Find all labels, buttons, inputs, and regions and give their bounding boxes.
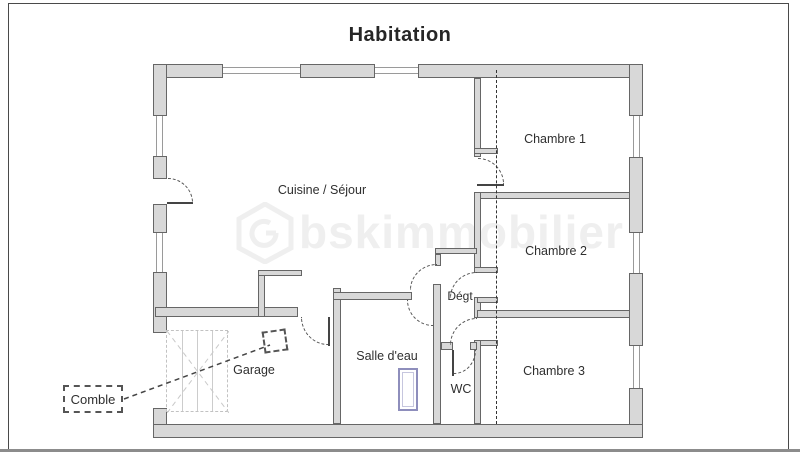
- wall-segment: [629, 273, 643, 346]
- wall-segment: [435, 248, 477, 254]
- window-marker: [375, 67, 418, 74]
- wall-segment: [333, 288, 341, 424]
- room-label-degt: Dégt: [447, 289, 472, 303]
- wall-segment: [629, 157, 643, 233]
- wall-segment: [155, 307, 298, 317]
- section-cut-line: [496, 70, 497, 424]
- wall-segment: [474, 192, 481, 272]
- room-label-chambre3: Chambre 3: [523, 364, 585, 378]
- wall-segment: [474, 78, 481, 157]
- door-arc: [168, 178, 193, 203]
- wall-segment: [629, 388, 643, 426]
- room-label-chambre1: Chambre 1: [524, 132, 586, 146]
- door-arc: [410, 264, 437, 290]
- shower-tray: [398, 368, 418, 411]
- floor-plan: Comble Cuisine / Séjour Chambre 1 Chambr…: [0, 0, 800, 461]
- door-arc: [478, 158, 504, 184]
- window-marker: [156, 116, 163, 156]
- window-marker: [633, 233, 640, 273]
- room-label-wc: WC: [451, 382, 472, 396]
- door-arc: [450, 318, 477, 345]
- wall-segment: [258, 270, 302, 276]
- floor-plan-page: { "title": "Habitation", "watermark": { …: [0, 0, 800, 461]
- wall-segment: [300, 64, 375, 78]
- wall-segment: [433, 284, 441, 424]
- window-marker: [633, 346, 640, 388]
- room-label-garage: Garage: [233, 363, 275, 377]
- wall-segment: [474, 267, 498, 273]
- room-label-comble: Comble: [71, 392, 116, 407]
- door-arc: [407, 300, 433, 326]
- wall-segment: [477, 297, 498, 303]
- wall-segment: [153, 424, 643, 438]
- wall-segment: [477, 192, 630, 199]
- wall-segment: [474, 148, 498, 154]
- window-marker: [156, 233, 163, 272]
- door-arc: [301, 317, 328, 345]
- wall-segment: [477, 310, 630, 318]
- wall-segment: [258, 270, 265, 317]
- wall-segment: [333, 292, 412, 300]
- wall-segment: [629, 64, 643, 116]
- wall-segment: [153, 204, 167, 233]
- wall-segment: [153, 64, 167, 116]
- door-leaf: [328, 317, 330, 346]
- room-label-cuisine-sejour: Cuisine / Séjour: [278, 183, 366, 197]
- wall-segment: [418, 64, 643, 78]
- wall-segment: [153, 272, 167, 333]
- comble-callout: Comble: [63, 385, 123, 413]
- room-label-salle-deau: Salle d'eau: [356, 349, 417, 363]
- room-label-chambre2: Chambre 2: [525, 244, 587, 258]
- door-arc: [454, 350, 476, 374]
- wall-segment: [153, 156, 167, 179]
- window-marker: [633, 116, 640, 157]
- door-leaf: [477, 184, 504, 186]
- window-marker: [223, 67, 300, 74]
